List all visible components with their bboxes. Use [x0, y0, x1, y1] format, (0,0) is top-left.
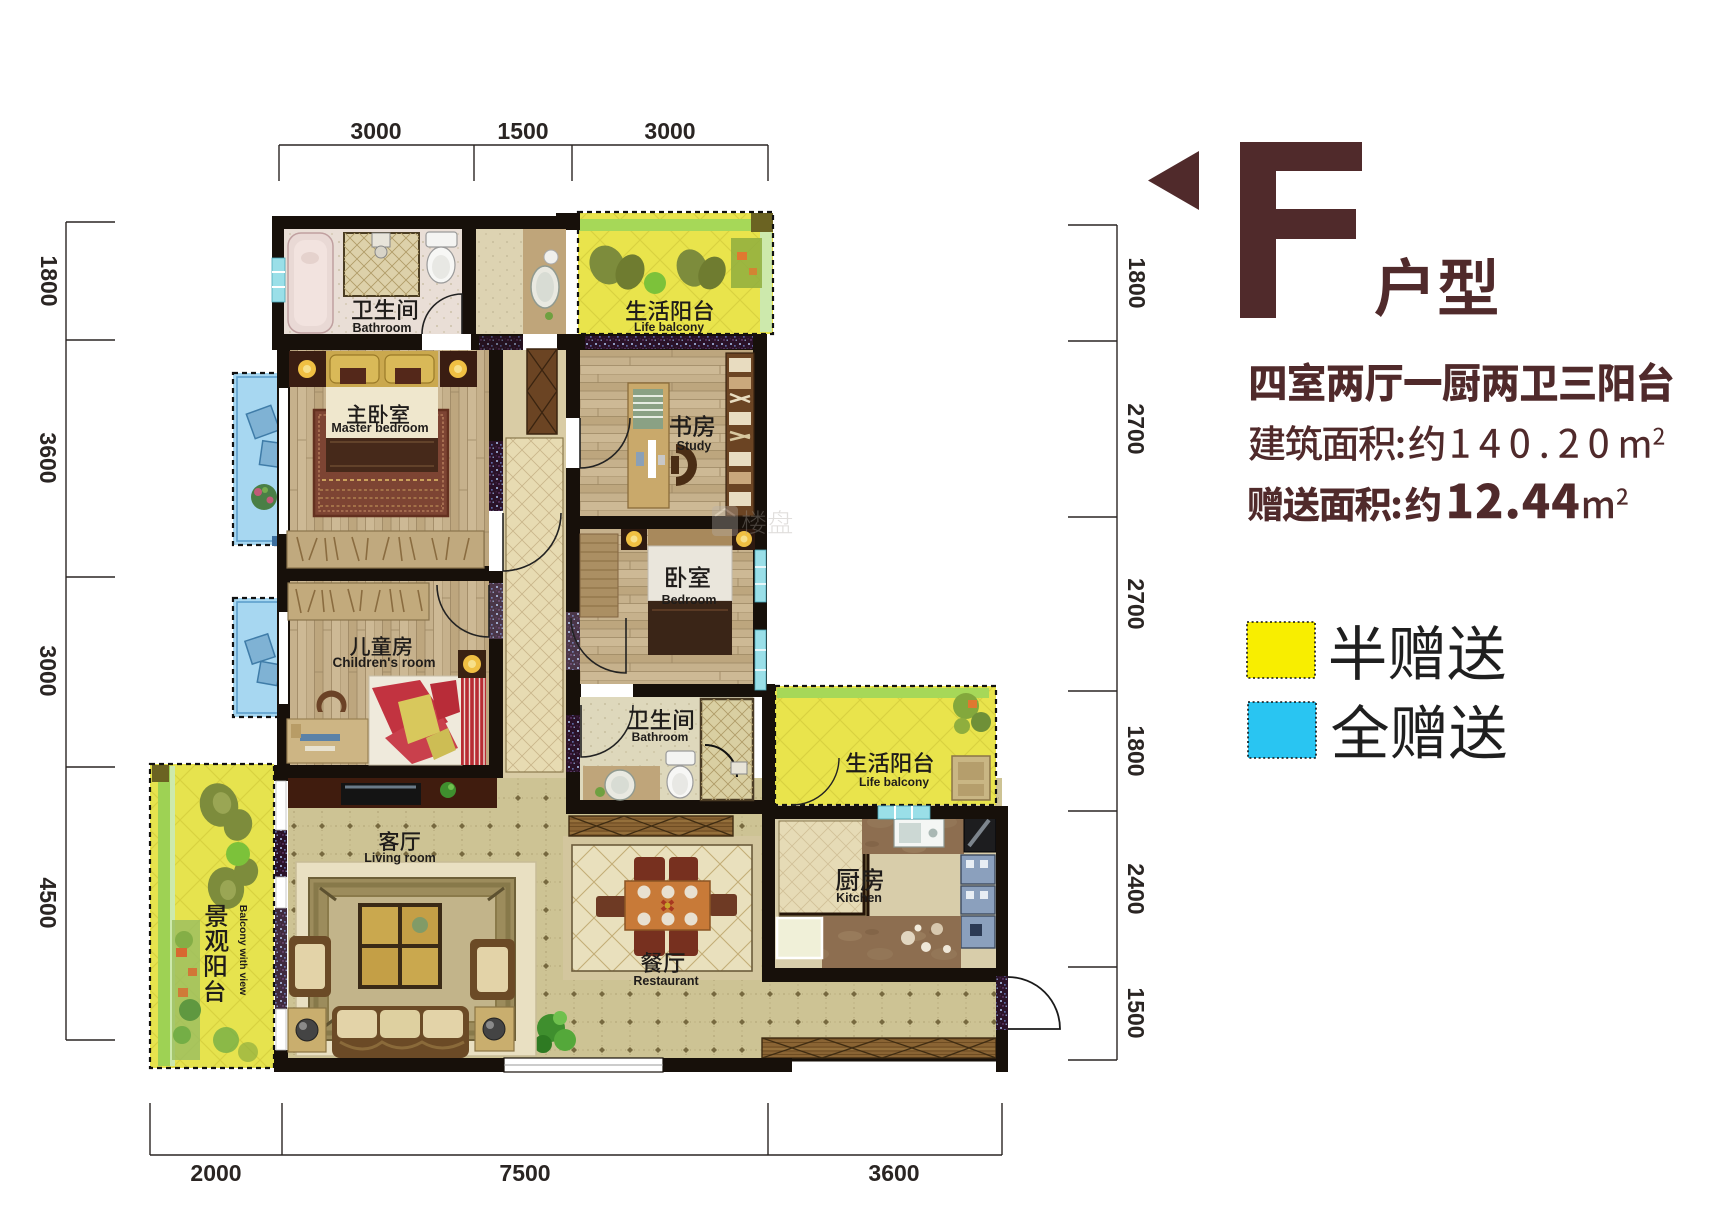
svg-text:Bathroom: Bathroom: [632, 730, 689, 744]
svg-text:Balcony with view: Balcony with view: [237, 905, 249, 996]
svg-text:7500: 7500: [499, 1160, 550, 1186]
svg-text:Study: Study: [677, 439, 712, 453]
svg-text:3000: 3000: [350, 118, 401, 144]
svg-text:Children's room: Children's room: [333, 655, 436, 670]
svg-text:Bathroom: Bathroom: [352, 321, 411, 335]
svg-text:2000: 2000: [190, 1160, 241, 1186]
svg-text:1500: 1500: [497, 118, 548, 144]
svg-text:3600: 3600: [35, 432, 61, 483]
svg-text:3000: 3000: [35, 645, 61, 696]
svg-text:1800: 1800: [1123, 725, 1149, 776]
svg-text:2400: 2400: [1123, 863, 1149, 914]
svg-text:Bedroom: Bedroom: [662, 593, 717, 607]
svg-text:1500: 1500: [1123, 987, 1149, 1038]
svg-text:3600: 3600: [868, 1160, 919, 1186]
svg-text:4500: 4500: [35, 877, 61, 928]
svg-text:Restaurant: Restaurant: [633, 974, 699, 988]
svg-text:1800: 1800: [1124, 257, 1150, 308]
svg-text:Life balcony: Life balcony: [634, 320, 704, 334]
svg-text:Life balcony: Life balcony: [859, 775, 929, 789]
svg-text:2700: 2700: [1123, 578, 1149, 629]
svg-text:Living room: Living room: [364, 851, 436, 865]
svg-text:1800: 1800: [36, 255, 62, 306]
svg-text:Master bedroom: Master bedroom: [331, 421, 428, 435]
svg-text:3000: 3000: [644, 118, 695, 144]
svg-text:2700: 2700: [1123, 403, 1149, 454]
svg-text:Kitchen: Kitchen: [836, 891, 882, 905]
